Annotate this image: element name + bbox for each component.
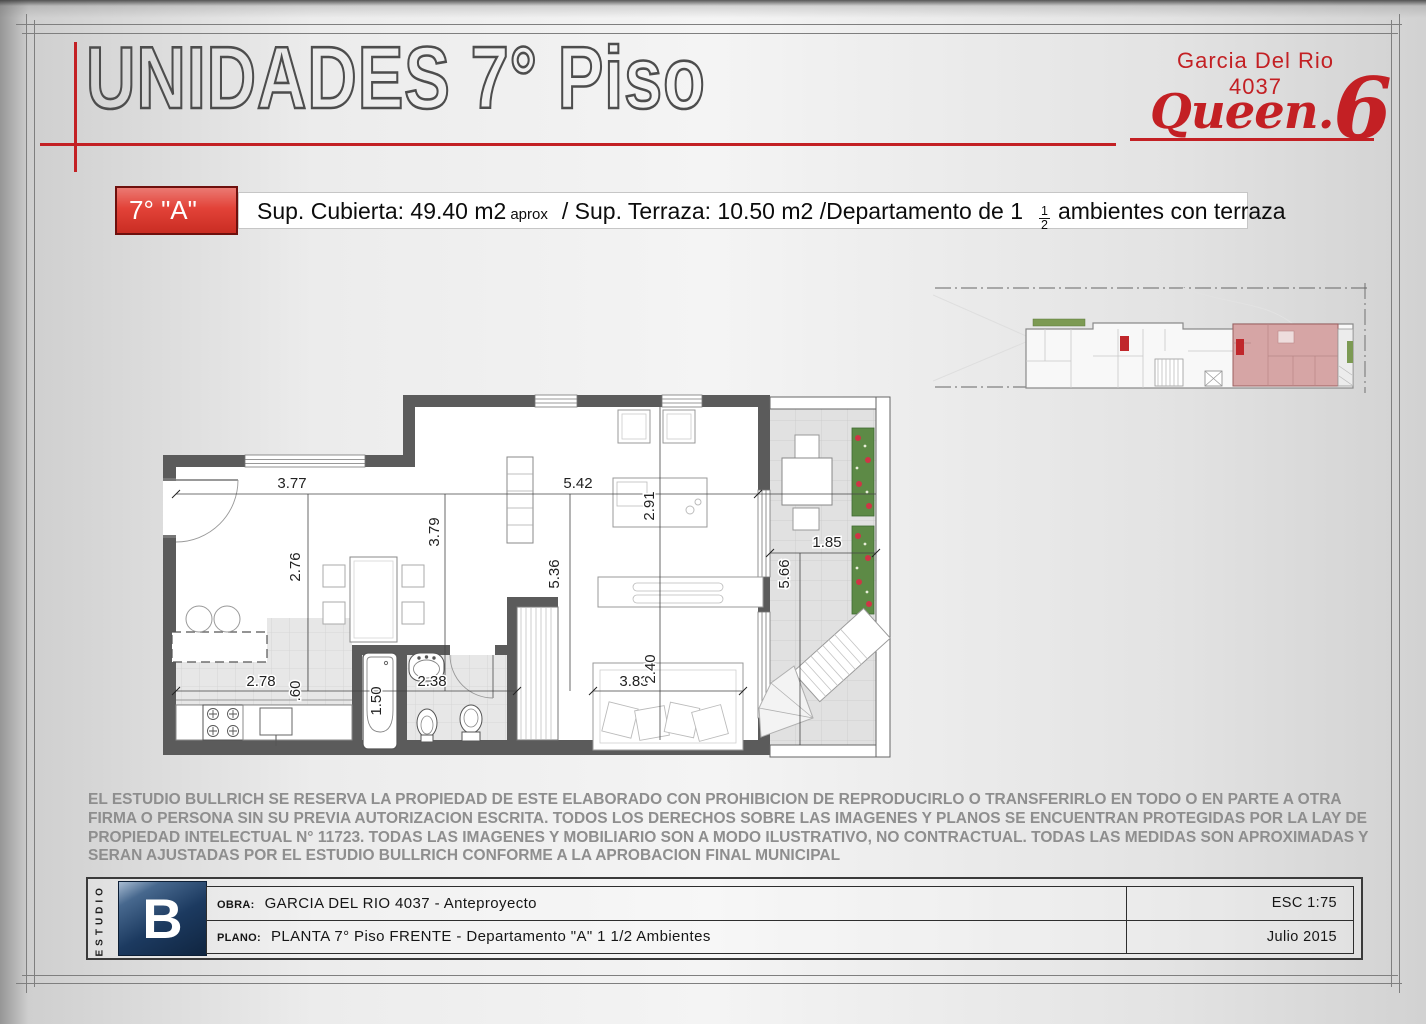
toilet <box>460 705 482 741</box>
dim-label-276: 2.76 <box>287 552 304 581</box>
brand-underline <box>1130 138 1374 141</box>
tv-rack <box>598 577 763 607</box>
dim-label-379: 3.79 <box>426 517 443 546</box>
titleblock: ESTUDIO B OBRA: GARCIA DEL RIO 4037 - An… <box>86 877 1363 960</box>
disclaimer-line: FIRMA O PERSONA SIN SU PREVIA AUTORIZACI… <box>88 810 1368 829</box>
dim-label-566: 5.66 <box>776 559 793 588</box>
disclaimer: EL ESTUDIO BULLRICH SE RESERVA LA PROPIE… <box>88 791 1368 866</box>
closet <box>517 607 558 740</box>
dim-label-542: 5.42 <box>563 475 592 492</box>
spec-terraza: / Sup. Terraza: 10.50 m2 /Departamento d… <box>562 198 1023 225</box>
unit-specs: Sup. Cubierta: 49.40 m2 aprox / Sup. Ter… <box>238 192 1248 229</box>
unit-tag: 7° "A" <box>115 186 238 235</box>
dim-label-536: 5.36 <box>546 559 563 588</box>
obra-label: OBRA: <box>217 899 255 911</box>
floor-overview-minimap <box>933 281 1373 399</box>
studio-vertical-label: ESTUDIO <box>88 879 114 958</box>
dim-label-150: 1.50 <box>368 686 385 715</box>
brand-script-name: Queen. <box>1150 84 1333 140</box>
page-title: UNIDADES 7° Piso <box>86 34 706 122</box>
date-value: Julio 2015 <box>1126 921 1353 954</box>
obra-value: GARCIA DEL RIO 4037 - Anteproyecto <box>265 895 537 912</box>
dim-label-060: .60 <box>287 681 304 702</box>
dim-label-278: 2.78 <box>246 673 275 690</box>
disclaimer-line: EL ESTUDIO BULLRICH SE RESERVA LA PROPIE… <box>88 791 1368 810</box>
spec-aprox: aprox <box>510 206 548 223</box>
scale-value: ESC 1:75 <box>1126 887 1353 920</box>
plano-row: PLANO: PLANTA 7° Piso FRENTE - Departame… <box>207 921 1353 954</box>
dim-label-185: 1.85 <box>812 534 841 551</box>
minimap-elevator <box>1205 371 1222 386</box>
spec-cubierta: Sup. Cubierta: 49.40 m2 <box>257 198 506 225</box>
plano-label: PLANO: <box>217 932 261 944</box>
floorplan: 3.77 5.42 1.85 2.91 2.76 3.79 5.36 5.66 … <box>145 380 905 775</box>
dim-label-238: 2.38 <box>417 673 446 690</box>
dim-label-240: 2.40 <box>642 654 659 683</box>
bed <box>593 663 743 750</box>
spec-fraction: 1 2 <box>1039 205 1050 232</box>
minimap-stairs <box>1155 359 1183 386</box>
dim-label-291: 2.91 <box>641 491 658 520</box>
shelf-unit <box>507 457 533 543</box>
header-rule <box>40 143 1116 146</box>
studio-b-logo: B <box>118 881 207 956</box>
brand-script: Queen.6 <box>1150 84 1390 140</box>
obra-row: OBRA: GARCIA DEL RIO 4037 - Anteproyecto… <box>207 887 1353 921</box>
dim-label-377: 3.77 <box>277 475 306 492</box>
plano-value: PLANTA 7° Piso FRENTE - Departamento "A"… <box>271 928 711 945</box>
disclaimer-line: SERAN AJUSTADAS POR EL ESTUDIO BULLRICH … <box>88 847 1368 866</box>
disclaimer-line: PROPIEDAD INTELECTUAL N° 11723. TODAS LA… <box>88 829 1368 848</box>
kitchen-fixtures <box>176 700 352 746</box>
spec-ambientes: ambientes con terraza <box>1058 198 1286 225</box>
brand-script-number: 6 <box>1333 59 1391 158</box>
titleblock-grid: OBRA: GARCIA DEL RIO 4037 - Anteproyecto… <box>206 886 1354 954</box>
header-accent-vline <box>74 42 77 172</box>
